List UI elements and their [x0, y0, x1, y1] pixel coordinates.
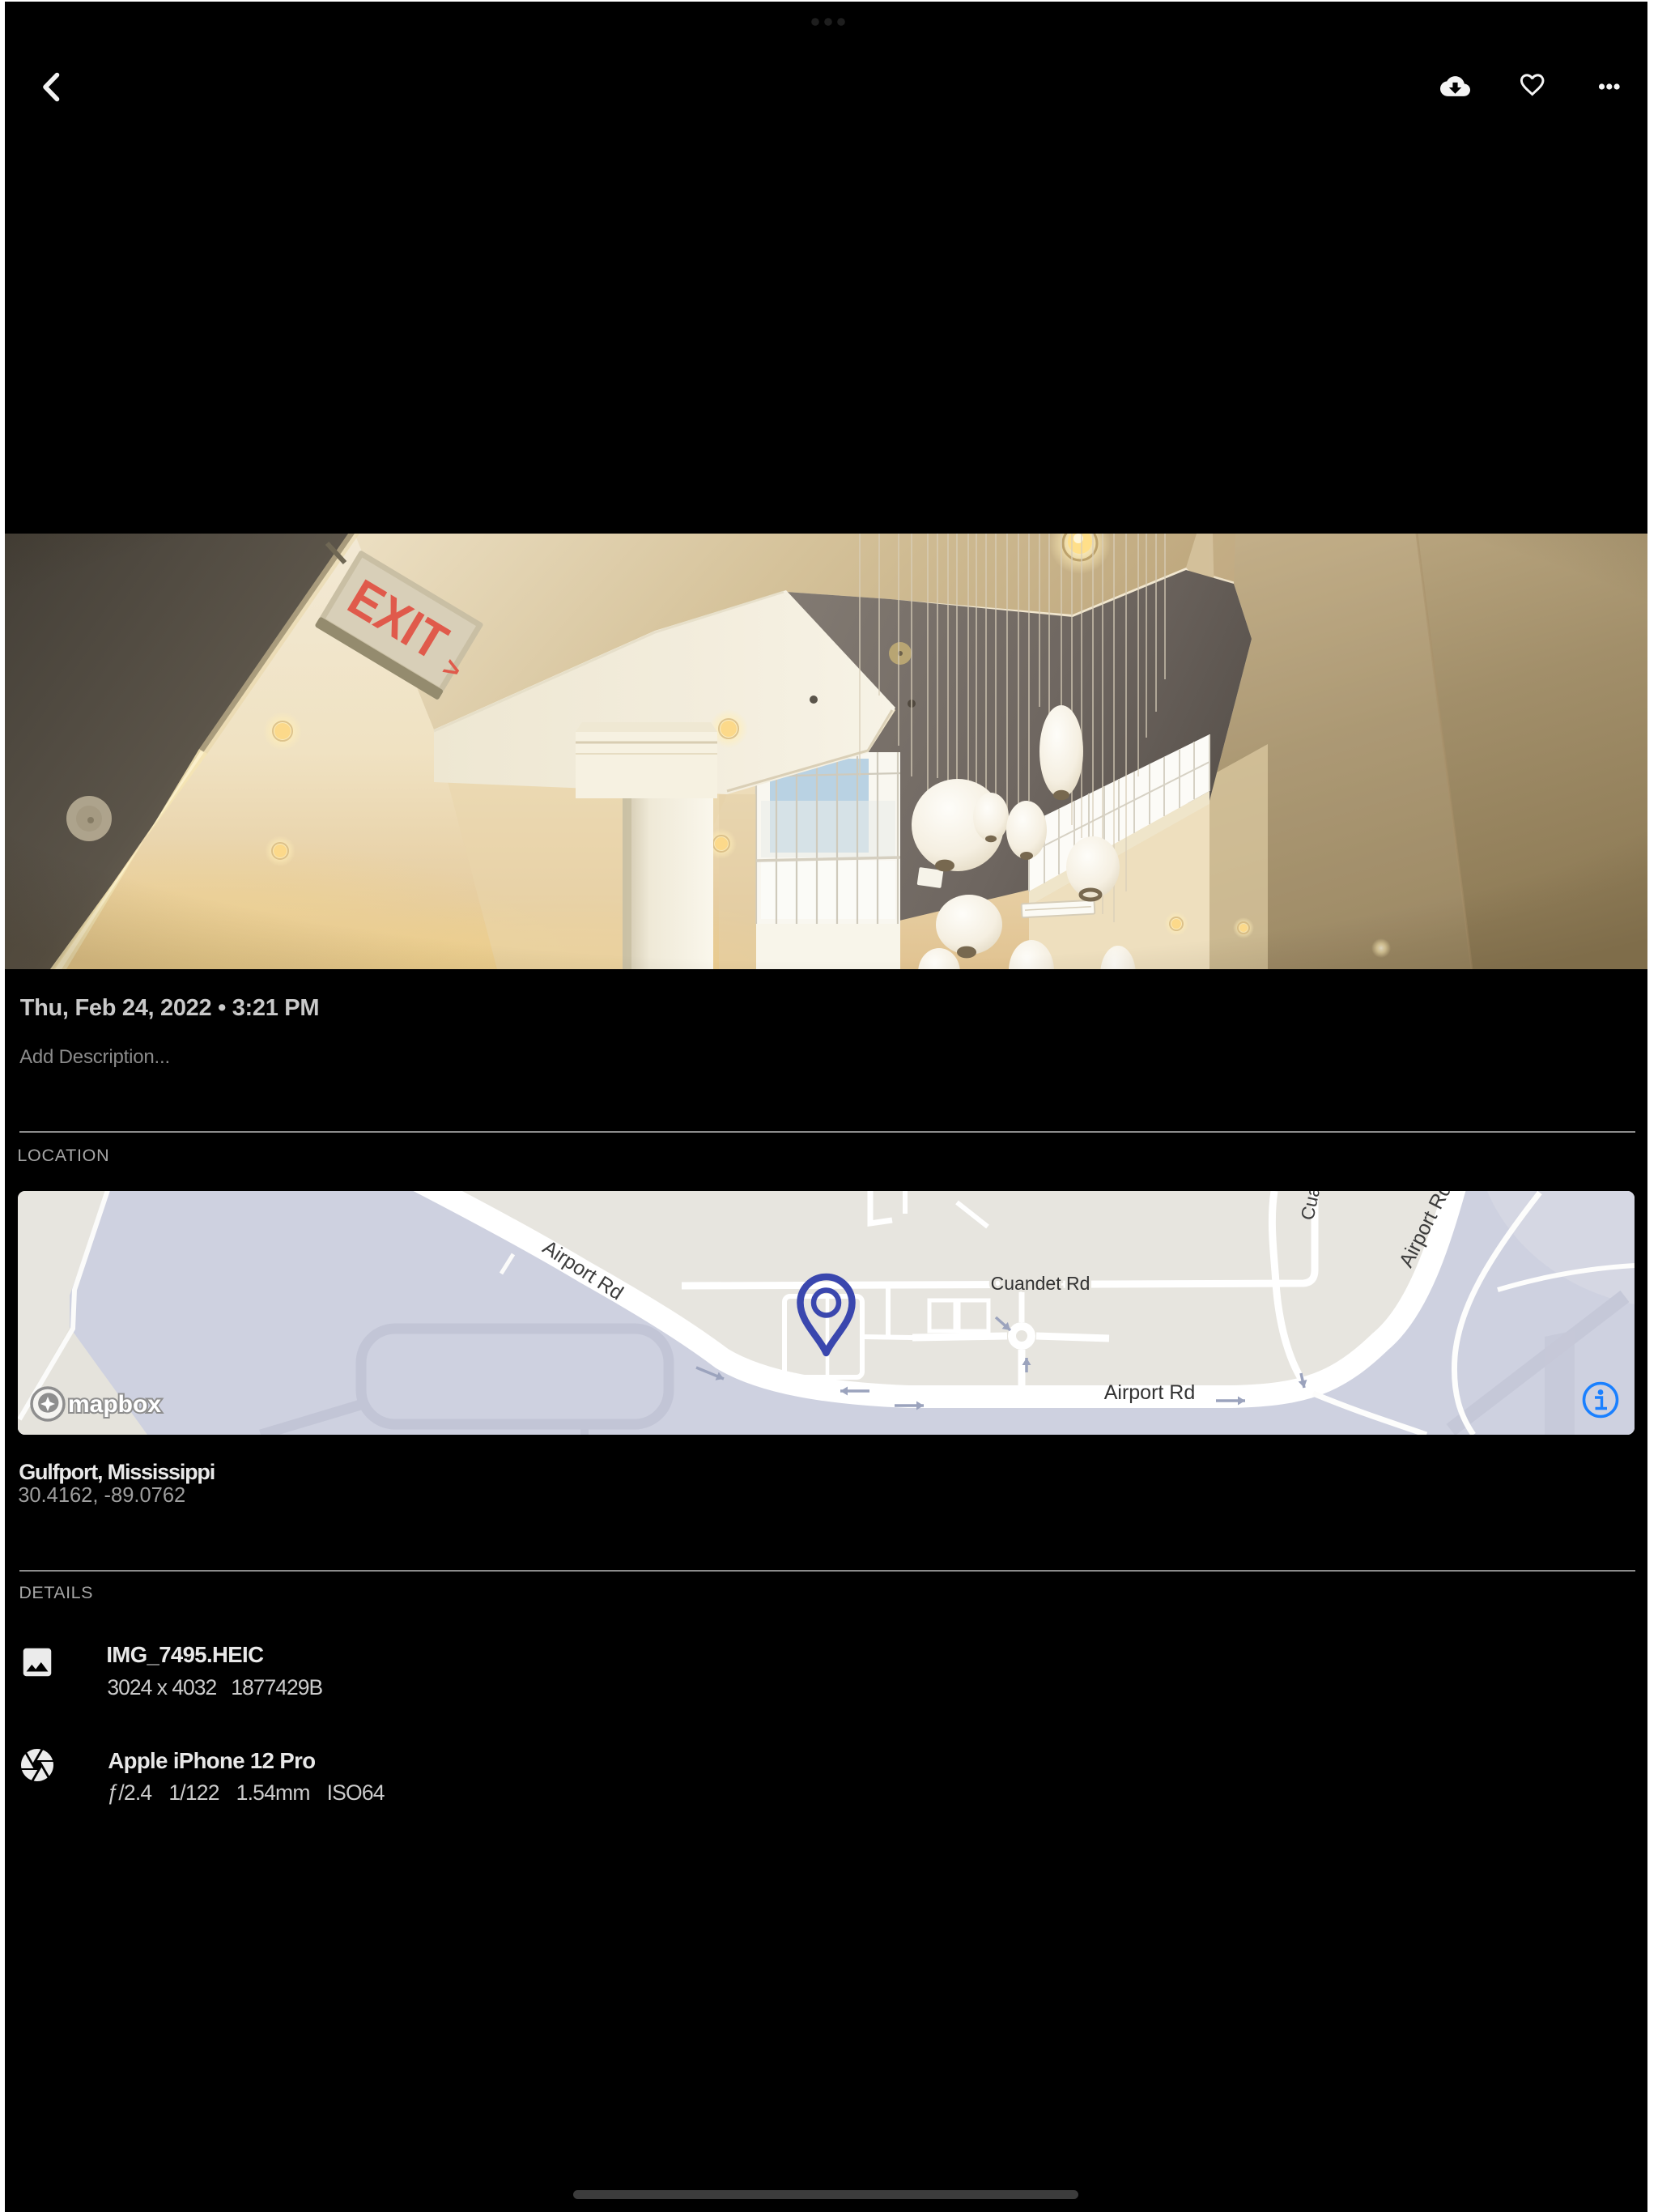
svg-text:Airport Rd: Airport Rd — [1104, 1381, 1196, 1404]
svg-text:Cuandet Rd: Cuandet Rd — [991, 1273, 1090, 1294]
svg-text:mapbox: mapbox — [68, 1391, 161, 1418]
